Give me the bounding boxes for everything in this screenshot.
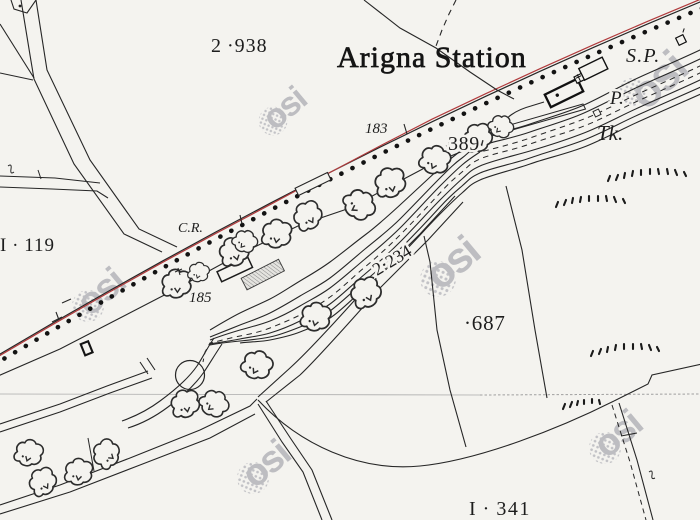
svg-text:C.R.: C.R. <box>178 221 203 236</box>
svg-text:P.: P. <box>609 88 624 109</box>
svg-text:S.P.: S.P. <box>626 45 660 67</box>
svg-text:183: 183 <box>365 121 388 137</box>
svg-text:I · 119: I · 119 <box>0 235 55 256</box>
svg-text:2 ·938: 2 ·938 <box>211 35 268 57</box>
svg-text:Arigna Station: Arigna Station <box>337 41 527 74</box>
svg-text:389: 389 <box>448 133 480 155</box>
svg-text:185: 185 <box>189 290 212 306</box>
svg-text:Tk.: Tk. <box>597 121 623 145</box>
svg-text:·687: ·687 <box>464 311 506 335</box>
svg-text:I · 341: I · 341 <box>469 498 531 520</box>
